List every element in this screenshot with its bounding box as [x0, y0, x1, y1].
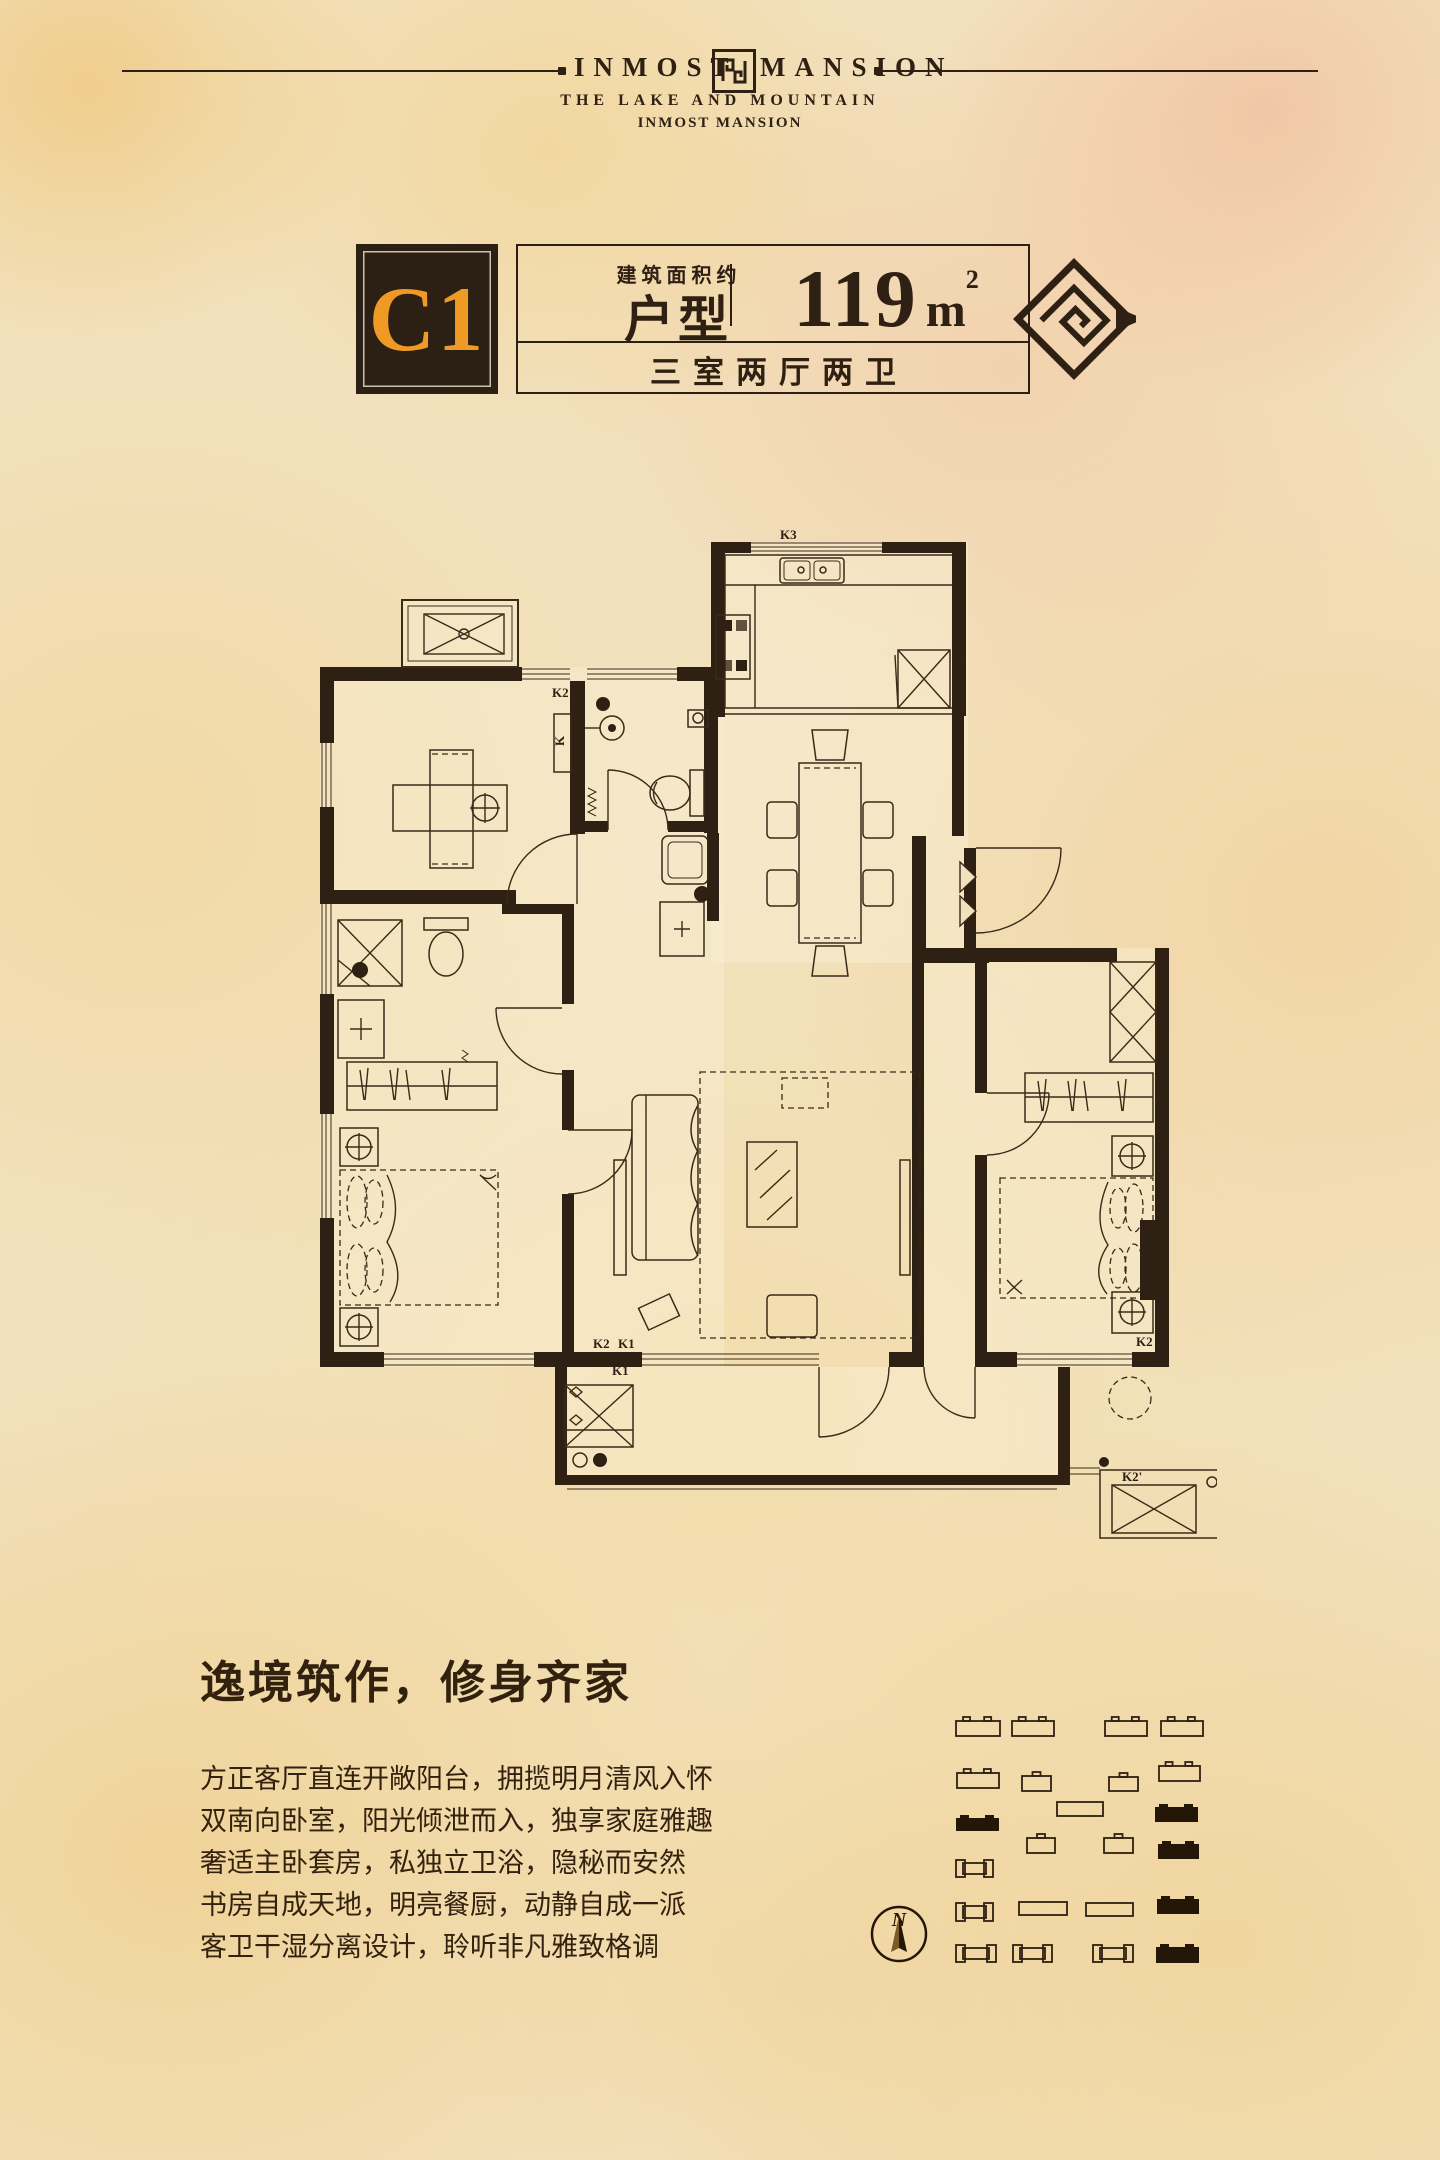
site-building — [956, 1815, 999, 1831]
rug — [700, 1072, 920, 1338]
compass: N — [872, 1907, 926, 1961]
description-line: 方正客厅直连开敞阳台，拥揽明月清风入怀 — [200, 1758, 713, 1800]
unit-title-top: 建筑面积约 户型 119m2 — [518, 246, 1028, 343]
unit-code-badge: C1 — [356, 244, 498, 394]
ac-platform-se — [1070, 1377, 1217, 1538]
site-building — [1159, 1762, 1200, 1781]
site-plan: N — [830, 1660, 1270, 2000]
plan-label: K2 — [552, 685, 569, 700]
area-unit: m2 — [926, 284, 979, 337]
site-building — [1109, 1773, 1138, 1791]
site-building — [1019, 1902, 1067, 1915]
site-building — [1161, 1717, 1203, 1736]
site-building — [956, 1903, 993, 1921]
site-plan-buildings — [956, 1717, 1203, 1963]
site-building — [1012, 1717, 1054, 1736]
plan-label: K1 — [618, 1336, 635, 1351]
plan-label: K2 — [1136, 1334, 1153, 1349]
plan-label: K2 — [593, 1336, 610, 1351]
unit-title-block: 建筑面积约 户型 119m2 三室两厅两卫 — [516, 244, 1030, 394]
header-subtitle: THE LAKE AND MOUNTAIN — [0, 92, 1440, 110]
site-building — [1022, 1772, 1051, 1791]
site-building — [1057, 1802, 1103, 1816]
description-paragraph: 方正客厅直连开敞阳台，拥揽明月清风入怀双南向卧室，阳光倾泄而入，独享家庭雅趣奢适… — [200, 1758, 713, 1968]
site-building — [1104, 1834, 1133, 1853]
site-building — [956, 1945, 996, 1962]
site-building — [1155, 1804, 1198, 1822]
side-table — [782, 1078, 828, 1108]
description-line: 书房自成天地，明亮餐厨，动静自成一派 — [200, 1884, 713, 1926]
plan-label: K3 — [780, 530, 797, 542]
unit-code: C1 — [369, 273, 485, 365]
brand-rule-left — [122, 70, 562, 72]
description-line: 客卫干湿分离设计，聆听非凡雅致格调 — [200, 1926, 713, 1968]
site-building — [1027, 1834, 1055, 1853]
brand-rule-right — [878, 70, 1318, 72]
coffee-table — [747, 1142, 797, 1227]
fret-arrow-ornament — [1012, 257, 1136, 381]
description-heading: 逸境筑作，修身齐家 — [200, 1646, 632, 1711]
brand-left: INMOST — [574, 52, 714, 83]
header-subtitle-2: INMOST MANSION — [0, 115, 1440, 132]
site-building — [1093, 1945, 1133, 1962]
site-building — [957, 1769, 999, 1788]
site-building — [1105, 1717, 1147, 1736]
brand-row: INMOST MANSION — [0, 48, 1440, 96]
brand-seal-icon — [711, 48, 757, 94]
site-building — [1013, 1945, 1052, 1962]
rooms-summary: 三室两厅两卫 — [518, 347, 1028, 392]
brand-right: MANSION — [760, 52, 910, 83]
floor-fill — [320, 542, 1169, 1485]
brand-dot-left — [558, 67, 566, 75]
plan-label: K — [552, 735, 567, 746]
site-building — [956, 1860, 993, 1877]
site-building — [1157, 1896, 1199, 1914]
side-table — [767, 1295, 817, 1337]
plan-label: K1 — [612, 1363, 629, 1378]
plan-label: K2' — [1122, 1469, 1142, 1484]
description-line: 双南向卧室，阳光倾泄而入，独享家庭雅趣 — [200, 1800, 713, 1842]
site-building — [1156, 1944, 1199, 1963]
title-divider — [730, 264, 732, 326]
floor-plan: K3K2KK2K1K1K2K2' — [312, 530, 1217, 1545]
site-building — [1086, 1903, 1133, 1916]
unit-area: 119m2 — [756, 252, 1016, 346]
tv — [900, 1160, 910, 1275]
site-building — [1158, 1841, 1199, 1859]
area-value: 119 — [793, 253, 917, 344]
description-line: 奢适主卧套房，私独立卫浴，隐秘而安然 — [200, 1842, 713, 1884]
site-building — [956, 1717, 1000, 1736]
unit-type-label: 户型 — [598, 280, 758, 352]
